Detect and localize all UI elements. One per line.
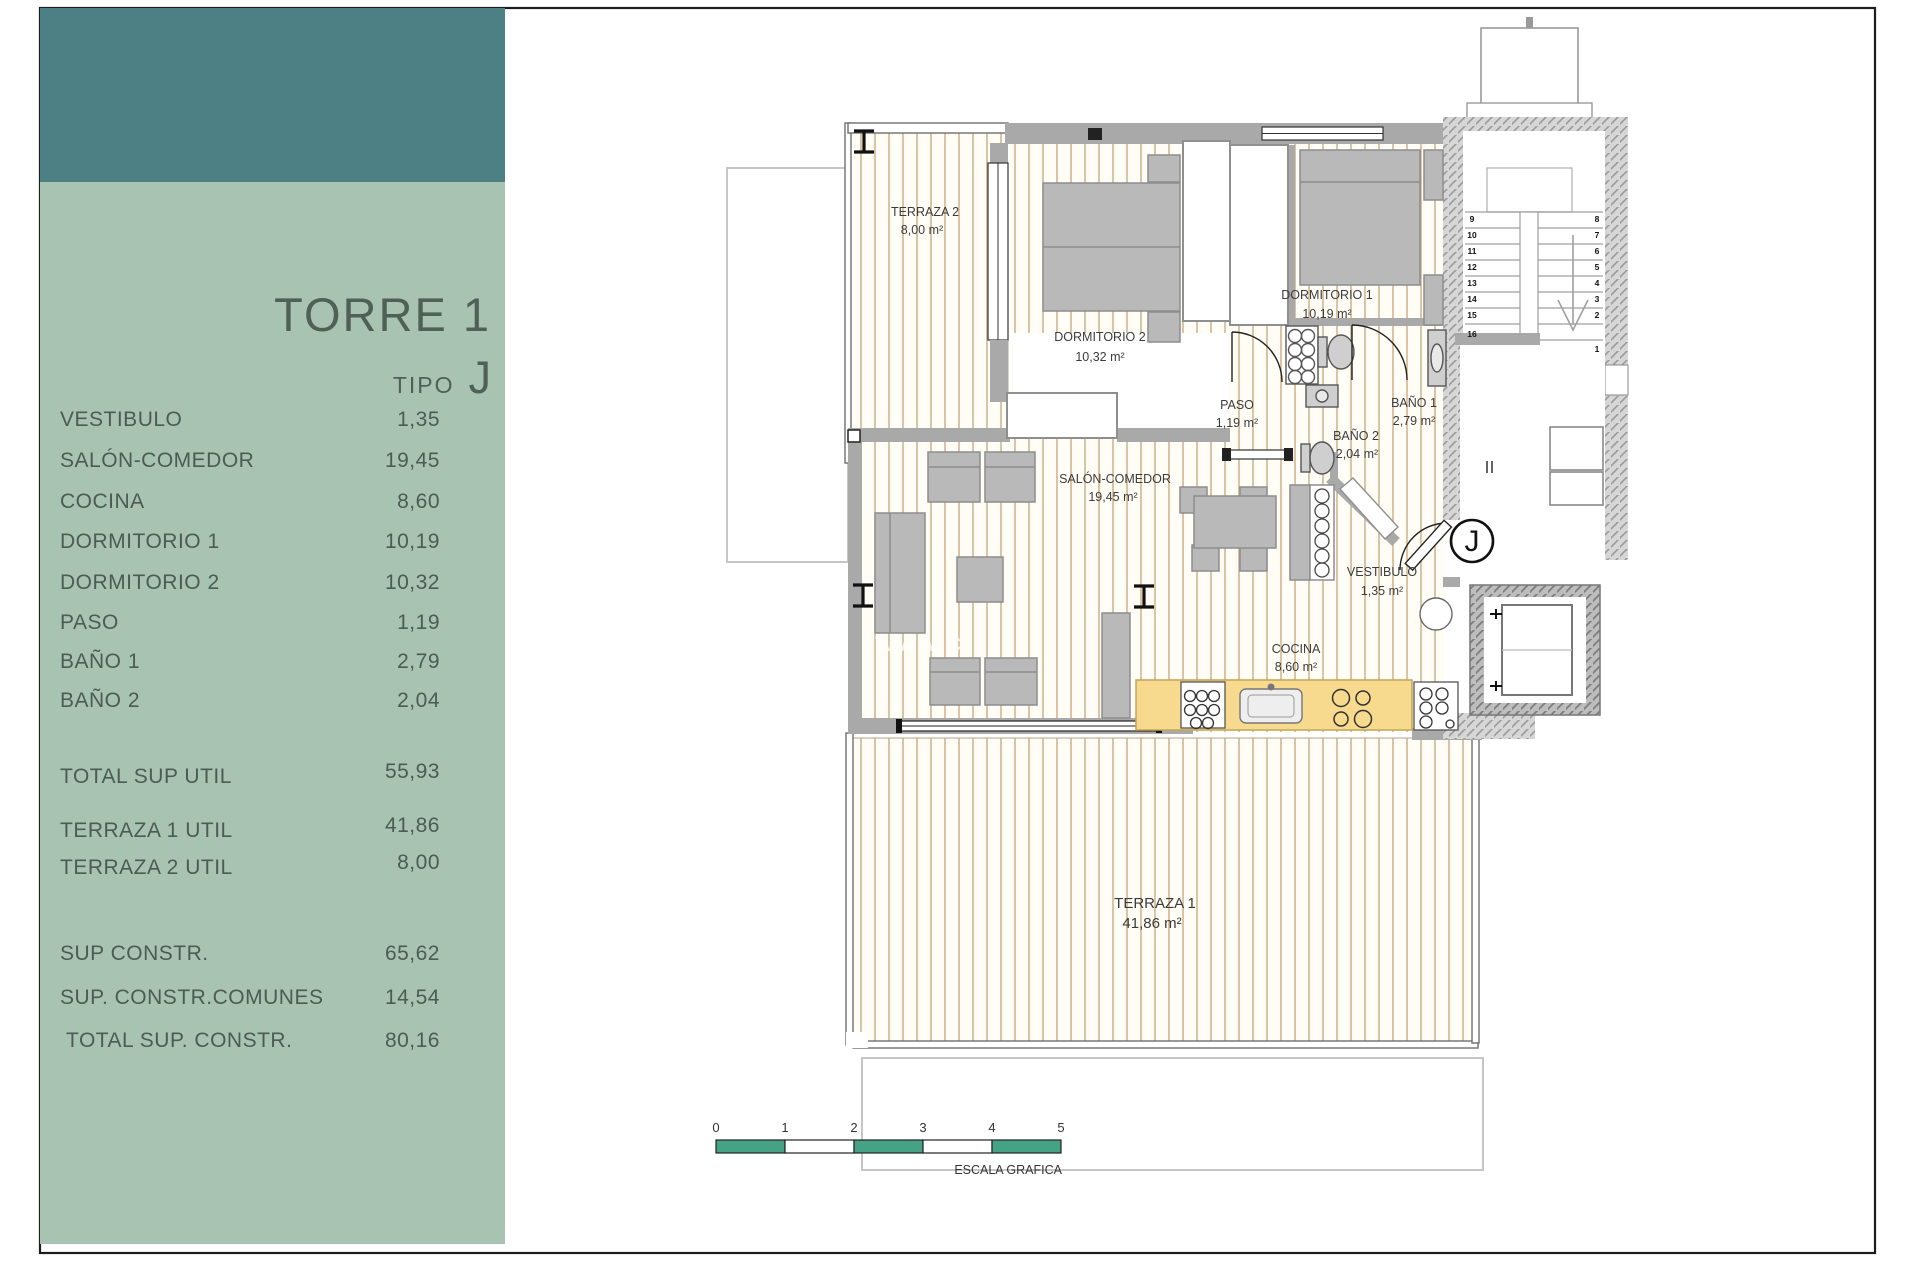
- svg-text:41,86 m²: 41,86 m²: [1122, 915, 1181, 932]
- room-row: PASO1,19: [60, 611, 440, 635]
- label-terraza1: TERRAZA 1: [1114, 895, 1196, 912]
- svg-text:5: 5: [1595, 262, 1600, 272]
- svg-text:6: 6: [1595, 246, 1600, 256]
- sidebar-header-band: [40, 8, 505, 182]
- label-cocina: COCINA: [1272, 642, 1321, 656]
- svg-text:14: 14: [1467, 294, 1477, 304]
- scale-caption: ESCALA GRAFICA: [954, 1163, 1062, 1177]
- room-row: VESTIBULO1,35: [60, 408, 440, 432]
- svg-text:11: 11: [1468, 246, 1477, 256]
- tower-title: TORRE 1: [274, 291, 491, 338]
- unit-badge: J: [1451, 520, 1493, 562]
- unit-badge-letter: J: [1465, 525, 1480, 558]
- label-terraza2: TERRAZA 2: [891, 205, 959, 219]
- svg-text:1,35 m²: 1,35 m²: [1361, 584, 1403, 598]
- svg-text:2,04 m²: 2,04 m²: [1336, 447, 1378, 461]
- tipo-value: J: [469, 352, 492, 403]
- svg-text:2: 2: [1595, 310, 1600, 320]
- svg-text:4: 4: [988, 1120, 995, 1135]
- tipo-label: TIPO: [393, 372, 455, 398]
- svg-text:0: 0: [712, 1120, 719, 1135]
- svg-text:12: 12: [1467, 262, 1477, 272]
- svg-text:1: 1: [1595, 344, 1600, 354]
- room-row: COCINA8,60: [60, 490, 440, 514]
- svg-text:7: 7: [1595, 230, 1600, 240]
- constr-row: TOTAL SUP. CONSTR.80,16: [66, 1029, 440, 1053]
- svg-text:15: 15: [1467, 310, 1477, 320]
- label-bano1: BAÑO 1: [1391, 396, 1437, 410]
- room-row: BAÑO 22,04: [60, 689, 440, 713]
- kitchen-sink: [1240, 689, 1302, 723]
- svg-text:2: 2: [850, 1120, 857, 1135]
- svg-text:10,19 m²: 10,19 m²: [1302, 307, 1351, 321]
- svg-text:13: 13: [1467, 278, 1477, 288]
- svg-text:4: 4: [1595, 278, 1600, 288]
- room-row: DORMITORIO 210,32: [60, 571, 440, 595]
- tipo-line: TIPOJ: [274, 352, 491, 404]
- elevator: [1470, 585, 1600, 715]
- svg-text:3: 3: [1595, 294, 1600, 304]
- label-paso: PASO: [1220, 398, 1254, 412]
- svg-text:10: 10: [1467, 230, 1477, 240]
- water-heater: [1420, 598, 1452, 630]
- svg-text:1,19 m²: 1,19 m²: [1216, 416, 1258, 430]
- constr-row: SUP CONSTR.65,62: [60, 942, 440, 966]
- svg-text:8: 8: [1595, 214, 1600, 224]
- svg-text:2,79 m²: 2,79 m²: [1393, 414, 1435, 428]
- label-salon: SALÓN-COMEDOR: [1059, 471, 1171, 486]
- floorplan-sheet: J www.c TERRAZA 2 8,00 m² DORMITORIO 2 1…: [0, 0, 1920, 1280]
- svg-text:10,32 m²: 10,32 m²: [1075, 350, 1124, 364]
- watermark: www.c: [874, 627, 963, 657]
- label-dormitorio2: DORMITORIO 2: [1054, 330, 1145, 344]
- svg-text:19,45 m²: 19,45 m²: [1088, 490, 1137, 504]
- room-row: SALÓN-COMEDOR19,45: [60, 449, 440, 473]
- svg-text:9: 9: [1470, 214, 1475, 224]
- total-row: TERRAZA 2 UTIL8,00: [60, 856, 440, 880]
- svg-text:1: 1: [781, 1120, 788, 1135]
- title-block: TORRE 1 TIPOJ: [274, 291, 491, 404]
- svg-text:3: 3: [919, 1120, 926, 1135]
- svg-text:8,00 m²: 8,00 m²: [901, 223, 943, 237]
- label-vestibulo: VESTIBULO: [1347, 565, 1417, 579]
- room-row: DORMITORIO 110,19: [60, 530, 440, 554]
- label-bano2: BAÑO 2: [1333, 429, 1379, 443]
- constr-row: SUP. CONSTR.COMUNES14,54: [60, 986, 440, 1010]
- svg-text:5: 5: [1057, 1120, 1064, 1135]
- total-row: TERRAZA 1 UTIL41,86: [60, 819, 440, 843]
- svg-text:16: 16: [1467, 329, 1477, 339]
- summary-sidebar: TORRE 1 TIPOJ VESTIBULO1,35 SALÓN-COMEDO…: [40, 8, 505, 1244]
- neighbour-outline: [727, 168, 848, 562]
- total-row: TOTAL SUP UTIL55,93: [60, 765, 440, 789]
- label-dormitorio1: DORMITORIO 1: [1281, 288, 1372, 302]
- room-row: BAÑO 12,79: [60, 650, 440, 674]
- svg-text:8,60 m²: 8,60 m²: [1275, 660, 1317, 674]
